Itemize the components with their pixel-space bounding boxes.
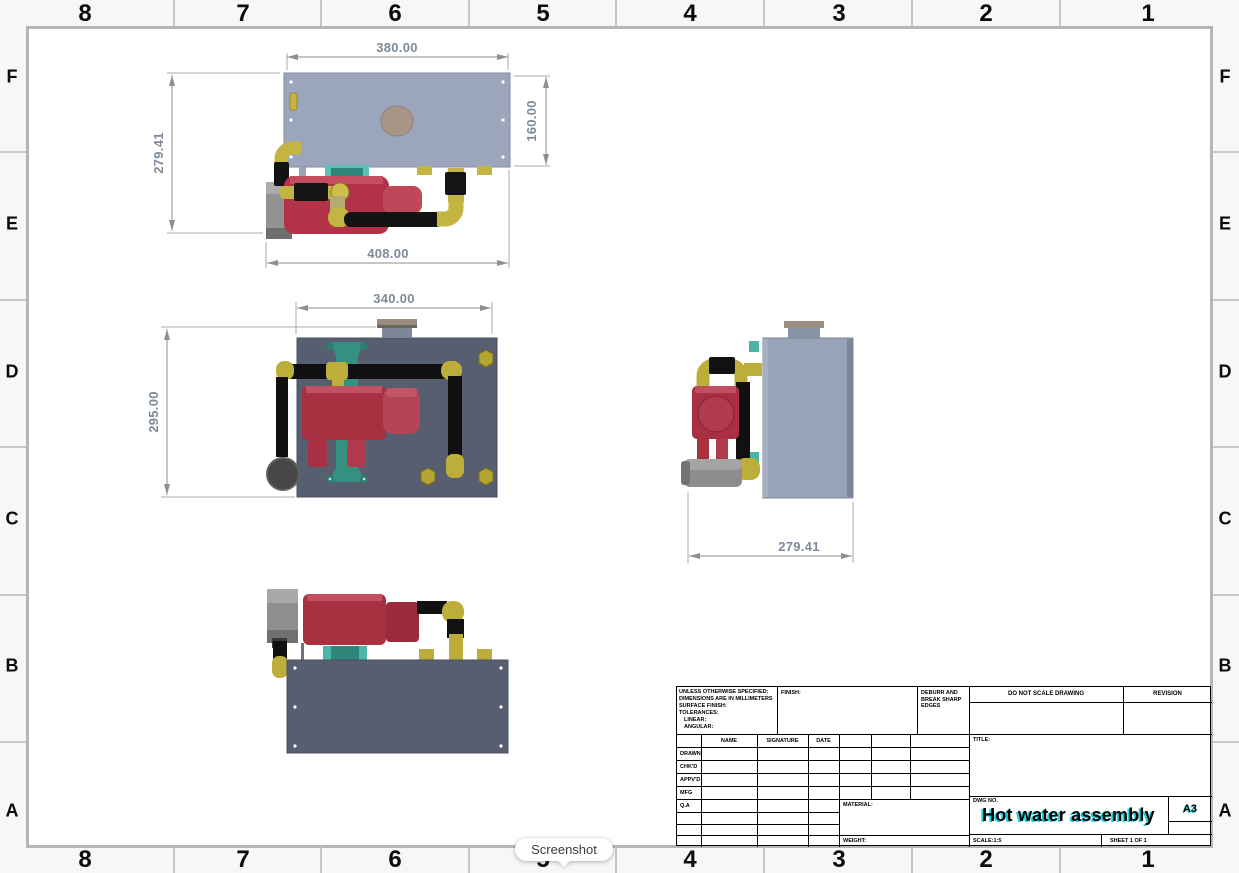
drawing-canvas: 8 7 6 5 4 3 2 1 8 7 6 5 4 3 2 1 F E D C … [0,0,1239,873]
zone-row-label: B [6,656,19,677]
zone-column-label: 5 [536,0,549,27]
row-chkd: CHK'D [680,764,697,771]
material-label: MATERIAL: [843,802,873,809]
col-name: NAME [701,738,757,745]
zone-tick [1213,299,1239,301]
revision-label: REVISION [1123,691,1212,697]
zone-tick [1213,594,1239,596]
zone-column-label: 7 [236,846,249,873]
zone-tick [1059,847,1061,873]
zone-column-label: 2 [979,846,992,873]
spec-line: DIMENSIONS ARE IN MILLIMETERS [679,696,773,703]
spec-line: ANGULAR: [679,724,773,731]
zone-row-label: D [6,362,19,383]
zone-tick [615,0,617,26]
zone-tick [320,0,322,26]
zone-row-label: F [1220,67,1231,88]
zone-row-label: D [1219,362,1232,383]
paper-size: A3 [1168,796,1212,821]
zone-column-label: 6 [388,846,401,873]
zone-column-label: 3 [832,0,845,27]
deburr-note: DEBURR AND BREAK SHARP EDGES [921,690,967,710]
zone-column-label: 1 [1141,0,1154,27]
zone-row-label: B [1219,656,1232,677]
zone-row-label: C [6,509,19,530]
row-appvd: APPV'D [680,777,700,784]
zone-tick [468,847,470,873]
zone-column-label: 4 [683,846,696,873]
zone-tick [1213,741,1239,743]
zone-tick [0,594,26,596]
screenshot-tooltip-label: Screenshot [531,842,597,857]
zone-column-label: 4 [683,0,696,27]
zone-column-label: 6 [388,0,401,27]
zone-row-label: C [1219,509,1232,530]
col-date: DATE [808,738,839,745]
zone-row-label: A [1219,801,1232,822]
zone-tick [1213,151,1239,153]
drawing-title: Hot water assembly [969,799,1168,832]
finish-label: FINISH: [781,690,801,697]
zone-tick [0,446,26,448]
zone-column-label: 8 [78,0,91,27]
zone-tick [1213,446,1239,448]
zone-tick [0,299,26,301]
screenshot-tooltip: Screenshot [515,838,613,861]
zone-column-label: 1 [1141,846,1154,873]
spec-line: UNLESS OTHERWISE SPECIFIED: [679,689,773,696]
zone-column-label: 2 [979,0,992,27]
zone-tick [320,847,322,873]
row-drawn: DRAWN [680,751,701,758]
spec-line: TOLERANCES: [679,710,773,717]
zone-column-label: 8 [78,846,91,873]
spec-note: UNLESS OTHERWISE SPECIFIED: DIMENSIONS A… [679,689,773,730]
zone-row-label: F [7,67,18,88]
sheet-label: SHEET 1 OF 1 [1110,838,1147,845]
zone-tick [173,0,175,26]
zone-tick [173,847,175,873]
zone-tick [0,151,26,153]
scale-label: SCALE:1:5 [973,838,1001,845]
zone-tick [1059,0,1061,26]
weight-label: WEIGHT: [843,838,866,845]
zone-tick [615,847,617,873]
title-label: TITLE: [973,737,990,744]
zone-tick [763,0,765,26]
spec-line: LINEAR: [679,717,773,724]
zone-tick [911,847,913,873]
col-signature: SIGNATURE [757,738,808,745]
zone-column-label: 7 [236,0,249,27]
spec-line: SURFACE FINISH: [679,703,773,710]
zone-tick [0,741,26,743]
do-not-scale-note: DO NOT SCALE DRAWING [969,691,1123,697]
zone-row-label: A [6,801,19,822]
zone-tick [468,0,470,26]
title-block: UNLESS OTHERWISE SPECIFIED: DIMENSIONS A… [676,686,1211,846]
zone-row-label: E [6,214,18,235]
row-mfg: MFG [680,790,692,797]
zone-column-label: 3 [832,846,845,873]
zone-tick [763,847,765,873]
zone-tick [911,0,913,26]
row-qa: Q.A [680,803,690,810]
zone-row-label: E [1219,214,1231,235]
